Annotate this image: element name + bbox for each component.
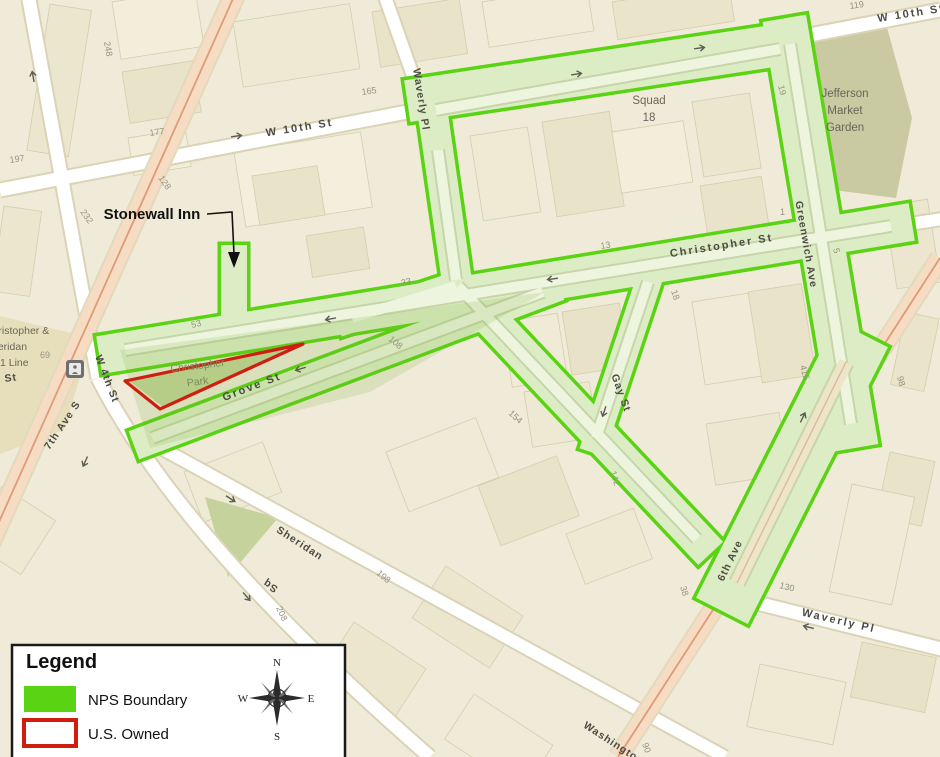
stonewall-monument-map: 248 177 197 232 128 165 53 33 13 119 19 … — [0, 0, 940, 757]
squad18-label-line1: Squad — [632, 95, 665, 107]
lot-number: 177 — [149, 126, 165, 138]
compass-e-label: E — [308, 693, 315, 705]
jefferson-label-line2: Market — [827, 105, 863, 117]
stonewall-inn-label: Stonewall Inn — [104, 206, 201, 223]
street-label-st-fragment: St — [4, 371, 18, 385]
legend: Legend NPS Boundary U.S. Owned N E S — [12, 645, 345, 757]
lot-number: 69 — [40, 350, 50, 360]
subway-station-icon — [66, 360, 84, 378]
us-owned-swatch — [24, 720, 76, 746]
lot-number: 165 — [361, 85, 377, 97]
map-canvas: 248 177 197 232 128 165 53 33 13 119 19 … — [0, 0, 940, 757]
lot-number: 13 — [600, 240, 611, 251]
jefferson-label-line1: Jefferson — [821, 88, 868, 100]
lot-number: 197 — [9, 153, 25, 165]
subway-station-label-line3: 1 Line — [0, 357, 29, 369]
compass-w-label: W — [238, 693, 249, 705]
legend-item-nps-boundary: NPS Boundary — [88, 692, 188, 709]
subway-station-label-line1: Christopher & — [0, 325, 49, 337]
squad18-label-line2: 18 — [643, 112, 656, 124]
compass-s-label: S — [274, 731, 280, 743]
compass-n-label: N — [273, 657, 281, 669]
subway-station-label-line2: Sheridan — [0, 341, 27, 353]
jefferson-label-line3: Garden — [826, 122, 864, 134]
nps-boundary-swatch — [24, 686, 76, 712]
lot-number: 1 — [780, 207, 785, 217]
legend-title: Legend — [26, 651, 97, 673]
legend-item-us-owned: U.S. Owned — [88, 726, 169, 743]
